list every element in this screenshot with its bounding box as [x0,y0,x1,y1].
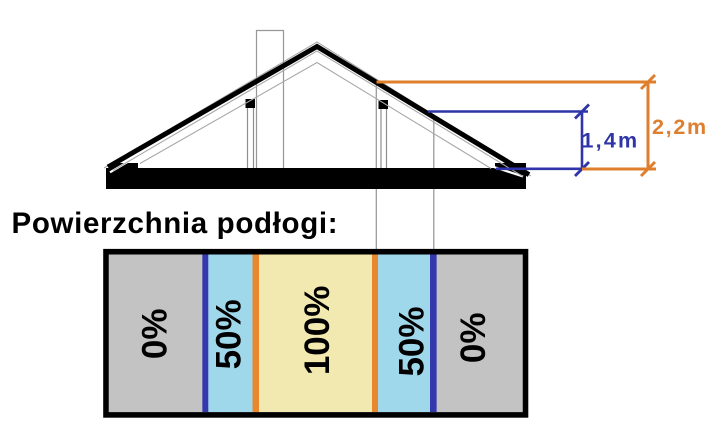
svg-text:2,2m: 2,2m [652,115,708,139]
svg-text:0%: 0% [136,309,175,360]
svg-text:0%: 0% [454,313,493,364]
svg-text:Powierzchnia podłogi:: Powierzchnia podłogi: [12,207,339,240]
svg-text:50%: 50% [209,299,248,369]
svg-text:50%: 50% [393,306,432,376]
svg-text:1,4m: 1,4m [582,129,640,153]
svg-text:100%: 100% [298,286,337,376]
